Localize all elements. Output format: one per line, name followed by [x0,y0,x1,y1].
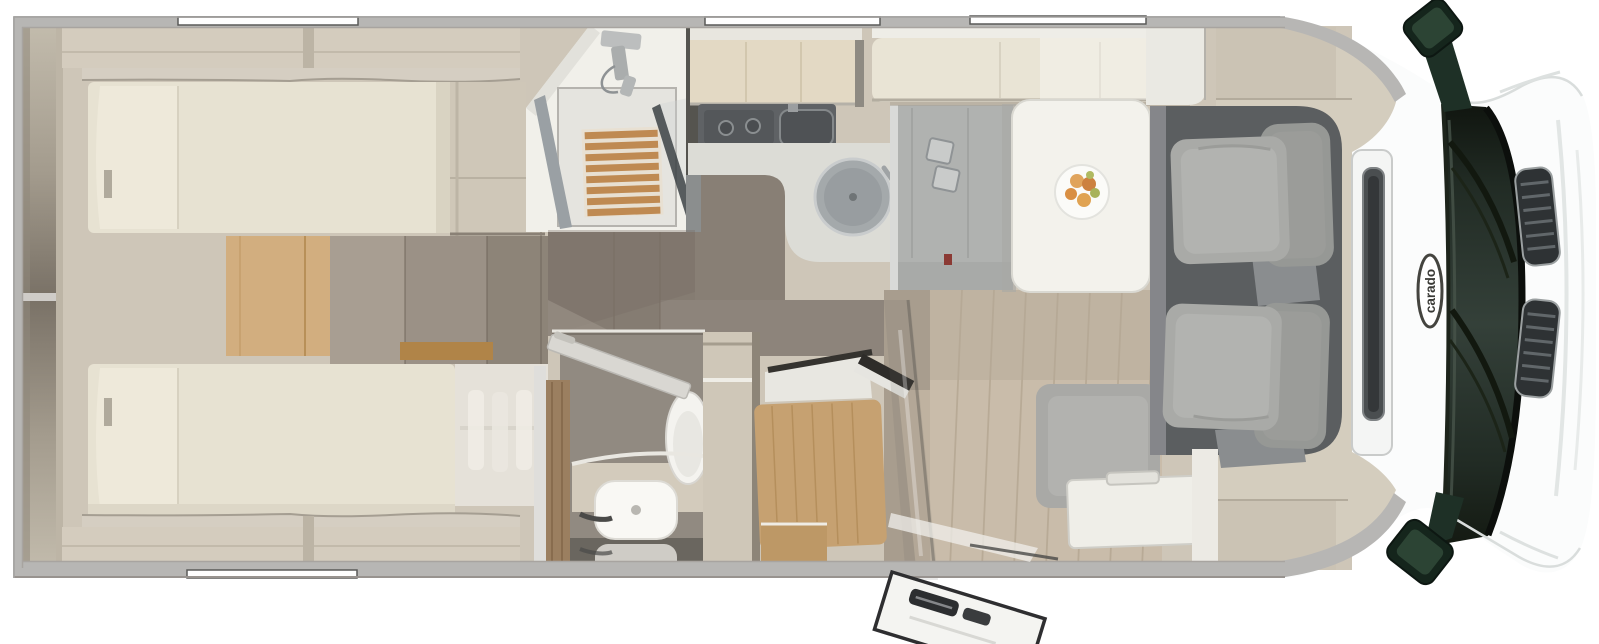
svg-text:carado: carado [1423,269,1438,313]
